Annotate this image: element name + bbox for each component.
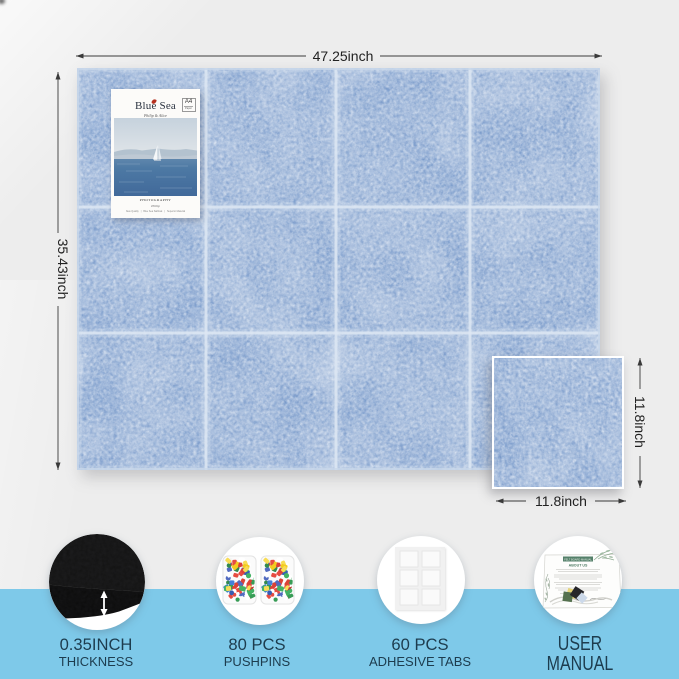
svg-text:ABOUT US: ABOUT US <box>569 564 588 568</box>
svg-text:35.43inch: 35.43inch <box>55 239 71 300</box>
svg-text:11.8inch: 11.8inch <box>535 493 587 509</box>
svg-text:47.25inch: 47.25inch <box>313 48 374 64</box>
svg-text:FELT BOARD MANUAL: FELT BOARD MANUAL <box>564 557 592 561</box>
svg-text:11.8inch: 11.8inch <box>632 396 648 448</box>
